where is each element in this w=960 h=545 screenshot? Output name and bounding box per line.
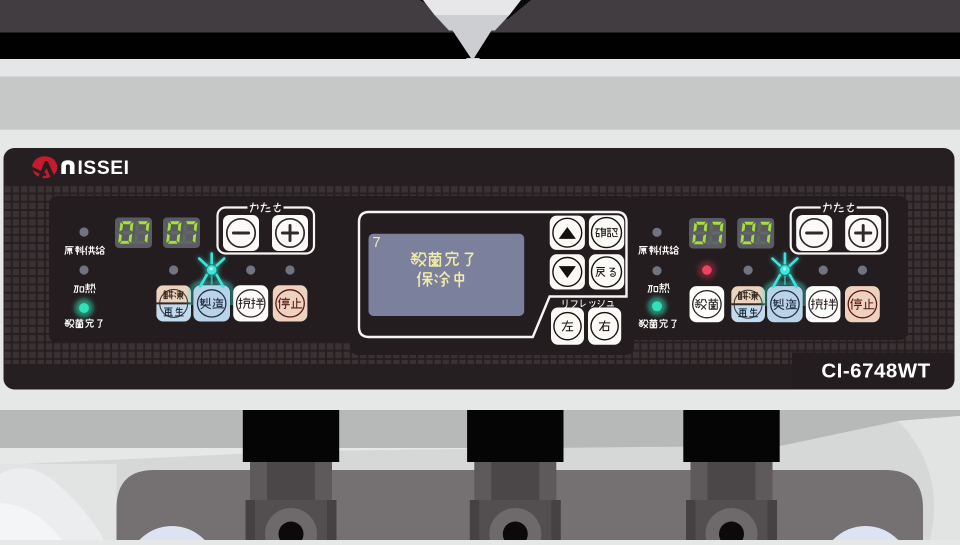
svg-text:CI-6748WT: CI-6748WT: [821, 360, 930, 383]
svg-text:ISSEI: ISSEI: [78, 158, 130, 179]
svg-text:7: 7: [373, 235, 381, 251]
